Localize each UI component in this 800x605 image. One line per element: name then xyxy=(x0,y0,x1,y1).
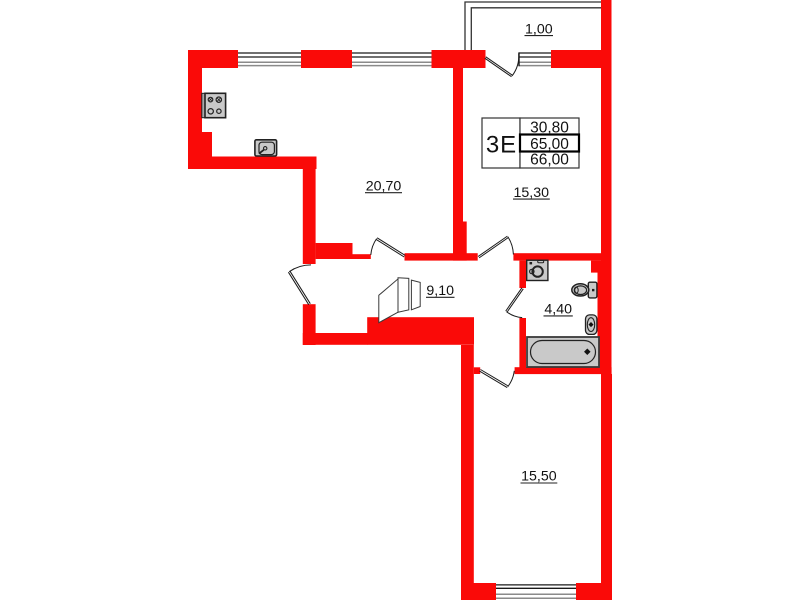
svg-text:4,40: 4,40 xyxy=(544,302,572,318)
svg-text:3Е: 3Е xyxy=(486,131,517,158)
svg-text:66,00: 66,00 xyxy=(530,152,569,169)
svg-text:15,50: 15,50 xyxy=(521,469,557,485)
svg-text:20,70: 20,70 xyxy=(366,178,402,194)
svg-text:30,80: 30,80 xyxy=(530,120,569,137)
svg-text:1,00: 1,00 xyxy=(525,21,553,37)
svg-text:15,30: 15,30 xyxy=(514,185,550,201)
svg-text:65,00: 65,00 xyxy=(530,136,569,153)
svg-text:9,10: 9,10 xyxy=(426,283,454,299)
